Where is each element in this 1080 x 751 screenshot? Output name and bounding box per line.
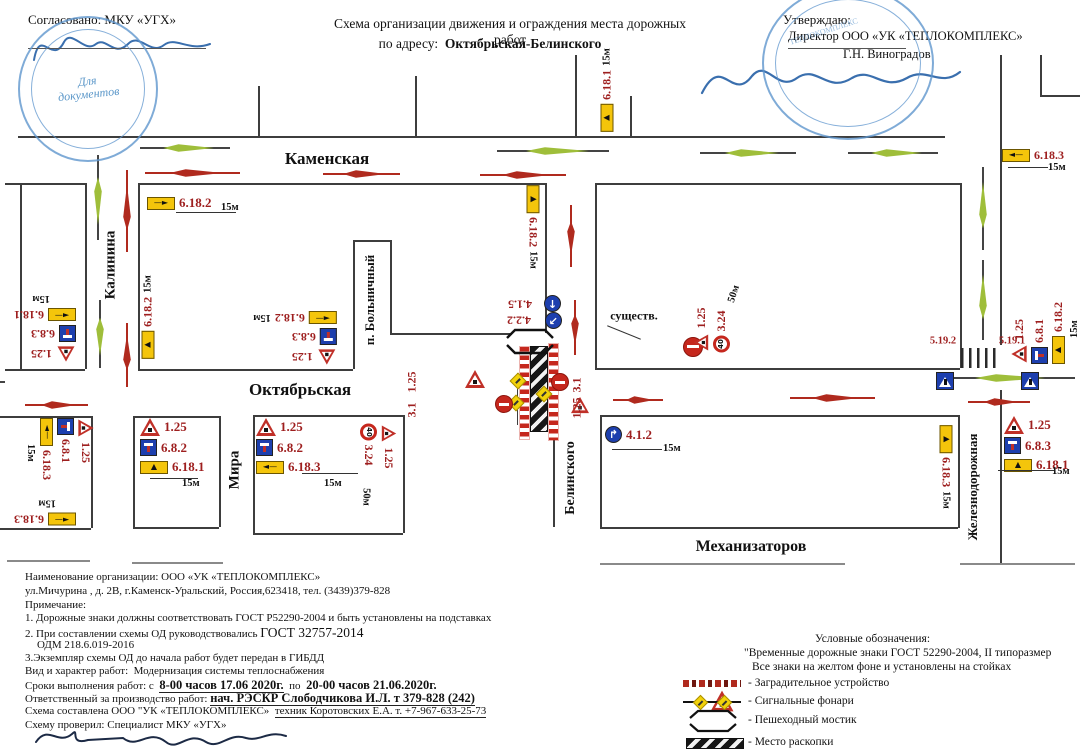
sign-label: 1.25: [405, 372, 420, 393]
distance-label: 15м: [182, 478, 200, 489]
gost-number: ГОСТ 32757-2014: [260, 625, 363, 640]
green-arrow-south: [95, 300, 105, 368]
roadworks-triangle-icon: [58, 346, 75, 361]
sign-label: 6.8.3: [1025, 438, 1051, 454]
dead-end-sign-icon: [140, 439, 157, 456]
street-line: [630, 96, 632, 138]
detour-arrow-sign-icon: [256, 461, 284, 474]
sign-label: 1.25: [292, 350, 313, 365]
roadworks-triangle-icon: [78, 420, 93, 437]
org-address-line: ул.Мичурина , д. 2В, г.Каменск-Уральский…: [25, 585, 390, 597]
sign-group: 6.18.2: [147, 195, 212, 211]
sign-label: 3.24: [361, 445, 376, 466]
sign-label: 4.2.2: [507, 313, 531, 328]
sign-label: 6.18.2: [179, 195, 212, 211]
zebra-crossing: [961, 348, 1001, 368]
distance-label: 15м: [324, 478, 342, 489]
sign-group: 1.25 6.8.3 6.18.1 15м: [14, 293, 76, 363]
dead-end-sign-icon: [1031, 347, 1048, 364]
distance-label: 15м: [25, 444, 36, 462]
turn-right-sign-icon: [605, 426, 622, 443]
detour-arrow-sign-icon: [940, 425, 953, 453]
sign-label: 6.18.2: [275, 310, 305, 325]
sign-label: 6.18.3: [39, 450, 54, 480]
street-line: [253, 533, 403, 535]
traffic-scheme-document: Каменская Калинина п. Больничный Октябрь…: [0, 0, 1080, 751]
roadworks-triangle-icon: [1011, 346, 1026, 363]
excavation-icon: [686, 738, 744, 749]
round-stamp-right: ТЕПЛОКОМПЛЕКС: [762, 0, 934, 140]
sign-group: 6.18.3 15м: [939, 425, 954, 509]
street-line: [0, 528, 91, 530]
work-type-line: Вид и характер работ: Модернизация систе…: [25, 665, 324, 677]
sign-label: 3.1: [405, 403, 420, 418]
distance-label: 50м: [361, 488, 372, 506]
street-line: [1040, 95, 1080, 97]
street-line: [390, 333, 512, 335]
sign-label: 3.24: [714, 311, 729, 332]
street-line: [415, 76, 417, 136]
pedestrian-bridge-icon: [502, 328, 558, 356]
street-line: [403, 415, 405, 533]
sign-group: 6.18.1 15м: [600, 48, 615, 132]
callout-line: [612, 449, 662, 450]
red-arrow-east: [25, 400, 88, 410]
green-arrow-east: [497, 146, 609, 156]
sign-label: 6.18.3: [1034, 148, 1064, 163]
dead-end-sign-icon: [1004, 437, 1021, 454]
street-name-mekhanizatorov: Механизаторов: [696, 538, 807, 556]
street-line: [138, 183, 140, 369]
distance-label: 15м: [253, 312, 271, 323]
street-line: [353, 240, 355, 369]
sign-label: 6.18.2: [526, 217, 541, 247]
sign-group: 1.25 6.8.1 6.18.3 15м: [25, 418, 95, 480]
sign-label: 6.18.1: [14, 307, 44, 322]
sign-label: 1.25: [1012, 319, 1027, 340]
note-3: 3.Экземпляр схемы ОД до начала работ буд…: [25, 652, 324, 664]
street-line: [960, 183, 962, 368]
pedestrian-crossing-sign-icon: [1021, 372, 1039, 390]
detour-arrow-sign-icon: [40, 418, 53, 446]
red-arrow-north: [122, 323, 132, 387]
street-line: [1000, 55, 1002, 345]
street-line: [133, 527, 219, 529]
signature-bottom: [28, 712, 308, 751]
dead-end-sign-icon: [59, 325, 76, 342]
street-line: [18, 136, 945, 138]
sign-label: 6.8.2: [161, 440, 187, 456]
sign-label: 1.25: [164, 419, 187, 435]
barrier-device-icon: [683, 680, 741, 687]
sign-group: 4.1.2: [605, 426, 652, 443]
sign-label: 6.8.1: [1032, 319, 1047, 343]
roadworks-triangle-icon: [382, 426, 396, 442]
distance-label: 15м: [32, 293, 50, 304]
sign-label: 6.18.2: [141, 297, 156, 327]
red-arrow-south: [566, 205, 576, 267]
street-line: [575, 55, 577, 136]
street-name-zheleznodorozhnaya: Железнодорожная: [965, 434, 981, 541]
round-stamp-left: Длядокументов: [18, 16, 158, 162]
street-line: [132, 562, 223, 564]
street-line: [219, 416, 221, 527]
signal-lantern-icon: [693, 695, 709, 711]
sign-label: 1.25: [280, 419, 303, 435]
sign-group: 1.25 6.8.3 6.18.1: [1004, 416, 1069, 473]
street-line: [960, 563, 1075, 565]
distance-label: 15м: [143, 275, 154, 293]
sign-label: 6.18.1: [600, 70, 615, 100]
obstacle-left-sign-icon: [545, 312, 562, 329]
sign-label: 6.8.1: [58, 439, 73, 463]
detour-arrow-sign-icon: [48, 308, 76, 321]
sign-label: 6.18.2: [1051, 302, 1066, 332]
sign-group: 1.25 6.8.3 6.18.215м: [253, 310, 337, 366]
roadworks-triangle-icon: [140, 418, 160, 436]
distance-label: 15м: [1069, 320, 1080, 338]
dead-end-sign-icon: [256, 439, 273, 456]
street-name-mira: Мира: [227, 451, 244, 490]
red-arrow-east: [790, 393, 875, 403]
street-line: [253, 415, 403, 417]
sign-label: 5.19.2: [930, 336, 956, 347]
red-arrow-east: [480, 170, 566, 180]
street-name-kamenskaya: Каменская: [285, 149, 369, 169]
sign-label: 1.25: [694, 308, 709, 329]
detour-arrow-sign-icon: [601, 104, 614, 132]
roadworks-triangle-icon: [694, 335, 708, 351]
sign-label: 1.25: [382, 448, 397, 469]
sign-label: 1.25: [1028, 417, 1051, 433]
responsible-line: Ответственный за производство работ: нач…: [25, 691, 475, 706]
street-line: [958, 415, 960, 528]
speed-limit-40-icon: [713, 336, 730, 353]
sign-label: 4.1.2: [626, 427, 652, 443]
roadworks-triangle-icon: [256, 418, 276, 436]
detour-arrow-sign-icon: [527, 185, 540, 213]
legend-item-4: - Пешеходный мостик: [748, 714, 857, 726]
dead-end-sign-icon: [57, 418, 74, 435]
distance-label: 15м: [1048, 162, 1066, 173]
sign-label: 3.1: [570, 378, 585, 393]
sign-group: 6.18.2 15м: [141, 275, 156, 359]
sign-label: 6.18.1: [172, 459, 205, 475]
detour-arrow-sign-icon: [1002, 149, 1030, 162]
street-name-belinskogo: Белинского: [563, 441, 579, 515]
no-entry-sign-icon: [495, 395, 513, 413]
street-line: [1000, 390, 1002, 563]
sign-label: 6.8.3: [292, 329, 316, 344]
street-line: [595, 183, 597, 368]
no-entry-sign-icon: [551, 373, 569, 391]
callout-line: [998, 470, 1054, 471]
note-1: 1. Дорожные знаки должны соответствовать…: [25, 612, 491, 624]
callout-line: [607, 325, 641, 339]
street-line: [600, 415, 602, 527]
red-arrow-east: [145, 168, 240, 178]
green-arrow-south: [93, 155, 103, 240]
green-arrow-north: [978, 260, 988, 340]
street-line: [1040, 55, 1042, 95]
document-address: по адресу: Октябрьская-Белинского: [320, 36, 660, 52]
street-line: [545, 183, 547, 333]
distance-label: 15м: [1052, 466, 1070, 477]
roadworks-triangle-icon: [1004, 416, 1024, 434]
straight-or-left-sign-icon: [544, 295, 561, 312]
street-line: [7, 560, 90, 562]
pedestrian-crossing-sign-icon: [936, 372, 954, 390]
sign-label: 6.8.2: [277, 440, 303, 456]
street-line: [133, 416, 135, 527]
legend-item-3: - Сигнальные фонари: [748, 695, 854, 707]
sign-group: 6.18.2 15м: [526, 185, 541, 269]
sign-label: 4.1.5: [508, 297, 532, 312]
street-line: [85, 183, 87, 369]
street-line: [253, 415, 255, 533]
green-arrow-east: [140, 143, 230, 153]
sign-label: 1.25: [79, 442, 94, 463]
street-line: [600, 527, 958, 529]
street-line: [390, 240, 392, 333]
legend-item-2: - Заградительное устройство: [748, 677, 889, 689]
roadworks-triangle-icon: [318, 349, 335, 364]
distance-label: 15м: [663, 443, 681, 454]
street-line: [138, 183, 545, 185]
barrier-device-left: [520, 347, 529, 439]
street-line: [595, 183, 960, 185]
detour-arrow-sign-icon: [309, 311, 337, 324]
sign-group: 1.25 3.24: [692, 308, 730, 353]
red-arrow-east: [613, 395, 663, 405]
sign-label: 1.25: [31, 347, 52, 362]
street-name-oktyabrskaya: Октябрьская: [249, 380, 351, 400]
detour-arrow-sign-icon: [142, 331, 155, 359]
legend-item-5: - Место раскопки: [748, 736, 833, 748]
detour-arrow-sign-icon: [48, 513, 76, 526]
street-line: [258, 86, 260, 136]
distance-label: 15м: [221, 202, 239, 213]
sign-group: 1.25 3.24: [360, 424, 398, 469]
sign-group: 6.18.3 15м: [14, 498, 76, 527]
note-2b: ОДМ 218.6.019-2016: [37, 639, 134, 651]
street-line: [353, 240, 390, 242]
speed-limit-40-icon: [360, 424, 377, 441]
green-arrow-east: [700, 148, 796, 158]
org-name-line: Наименование организации: ООО «УК «ТЕПЛО…: [25, 571, 320, 583]
detour-arrow-sign-icon: [140, 461, 168, 474]
dead-end-sign-icon: [320, 328, 337, 345]
existing-sign-label: существ.: [610, 309, 657, 324]
distance-label: 15м: [528, 251, 539, 269]
red-arrow-north: [122, 170, 132, 252]
detour-arrow-sign-icon: [1052, 336, 1065, 364]
callout-line: [302, 473, 358, 474]
roadworks-triangle-icon: [465, 370, 485, 388]
red-arrow-east: [323, 169, 400, 179]
street-line: [5, 369, 85, 371]
street-line: [600, 415, 958, 417]
detour-arrow-sign-icon: [147, 197, 175, 210]
green-arrow-east: [848, 148, 938, 158]
distance-label: 50м: [726, 284, 742, 304]
sign-label: 1.25: [570, 398, 585, 419]
green-arrow-north: [978, 167, 988, 250]
callout-line: [1008, 167, 1048, 168]
notes-title: Примечание:: [25, 599, 86, 611]
distance-label: 15м: [38, 498, 56, 509]
pedestrian-bridge-icon: [686, 709, 740, 733]
green-arrow-west: [0, 377, 5, 387]
street-name-kalinina: Калинина: [103, 231, 120, 300]
callout-line: [150, 478, 198, 479]
sign-label: 6.18.3: [14, 512, 44, 527]
street-line: [5, 183, 85, 185]
street-line: [138, 369, 353, 371]
sign-label: 6.18.3: [939, 457, 954, 487]
green-arrow-east: [940, 373, 1075, 383]
distance-label: 15м: [941, 491, 952, 509]
sign-group: 6.18.3: [1002, 148, 1064, 163]
red-arrow-east: [968, 397, 1030, 407]
legend-item-1a: "Временные дорожные знаки ГОСТ 52290-200…: [744, 647, 1051, 659]
street-name-bolnichny: п. Больничный: [362, 255, 378, 346]
sign-group: 1.25 6.8.2 6.18.3 15м: [256, 418, 342, 489]
red-arrow-south: [570, 300, 580, 355]
sign-group: 1.25 6.8.1 6.18.2 15м: [1010, 302, 1080, 364]
legend-item-1b: Все знаки на желтом фоне и установлены н…: [752, 661, 1011, 673]
street-line: [600, 563, 845, 565]
street-line: [595, 368, 960, 370]
legend-title: Условные обозначения:: [815, 633, 930, 645]
sign-label: 6.8.3: [31, 326, 55, 341]
